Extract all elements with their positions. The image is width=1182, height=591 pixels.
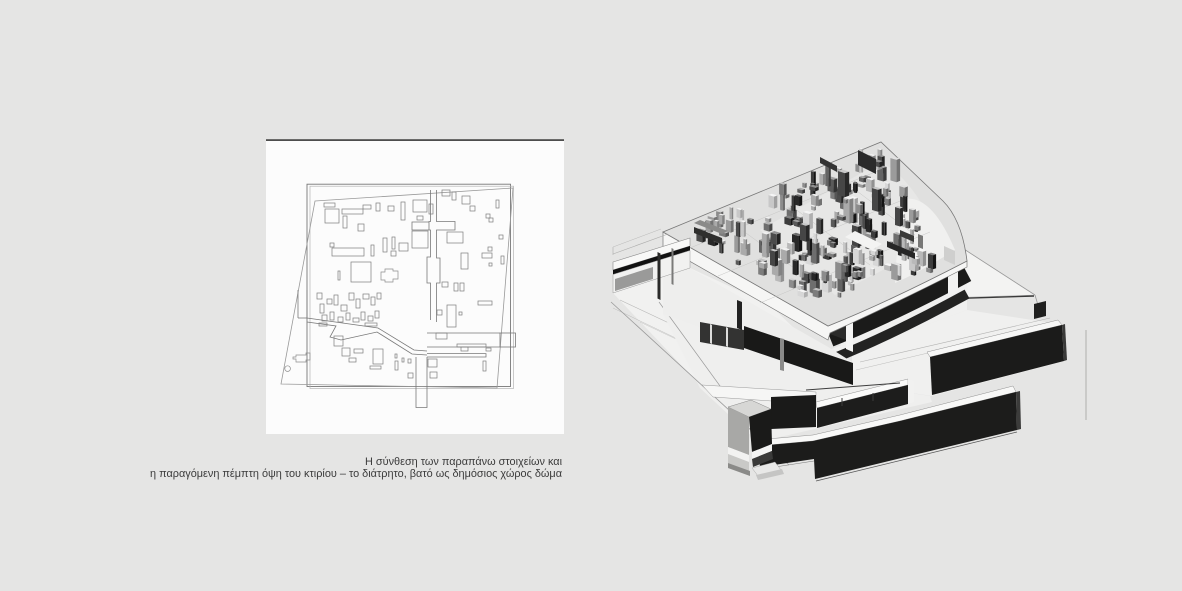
svg-text:Η σύνθεση των παραπάνω στοιχε: Η σύνθεση των παραπάνω στοιχείων και	[365, 456, 563, 468]
svg-text:η παραγόμενη πέμπτη όψη του κτ: η παραγόμενη πέμπτη όψη του κτιρίου – το…	[150, 468, 562, 480]
